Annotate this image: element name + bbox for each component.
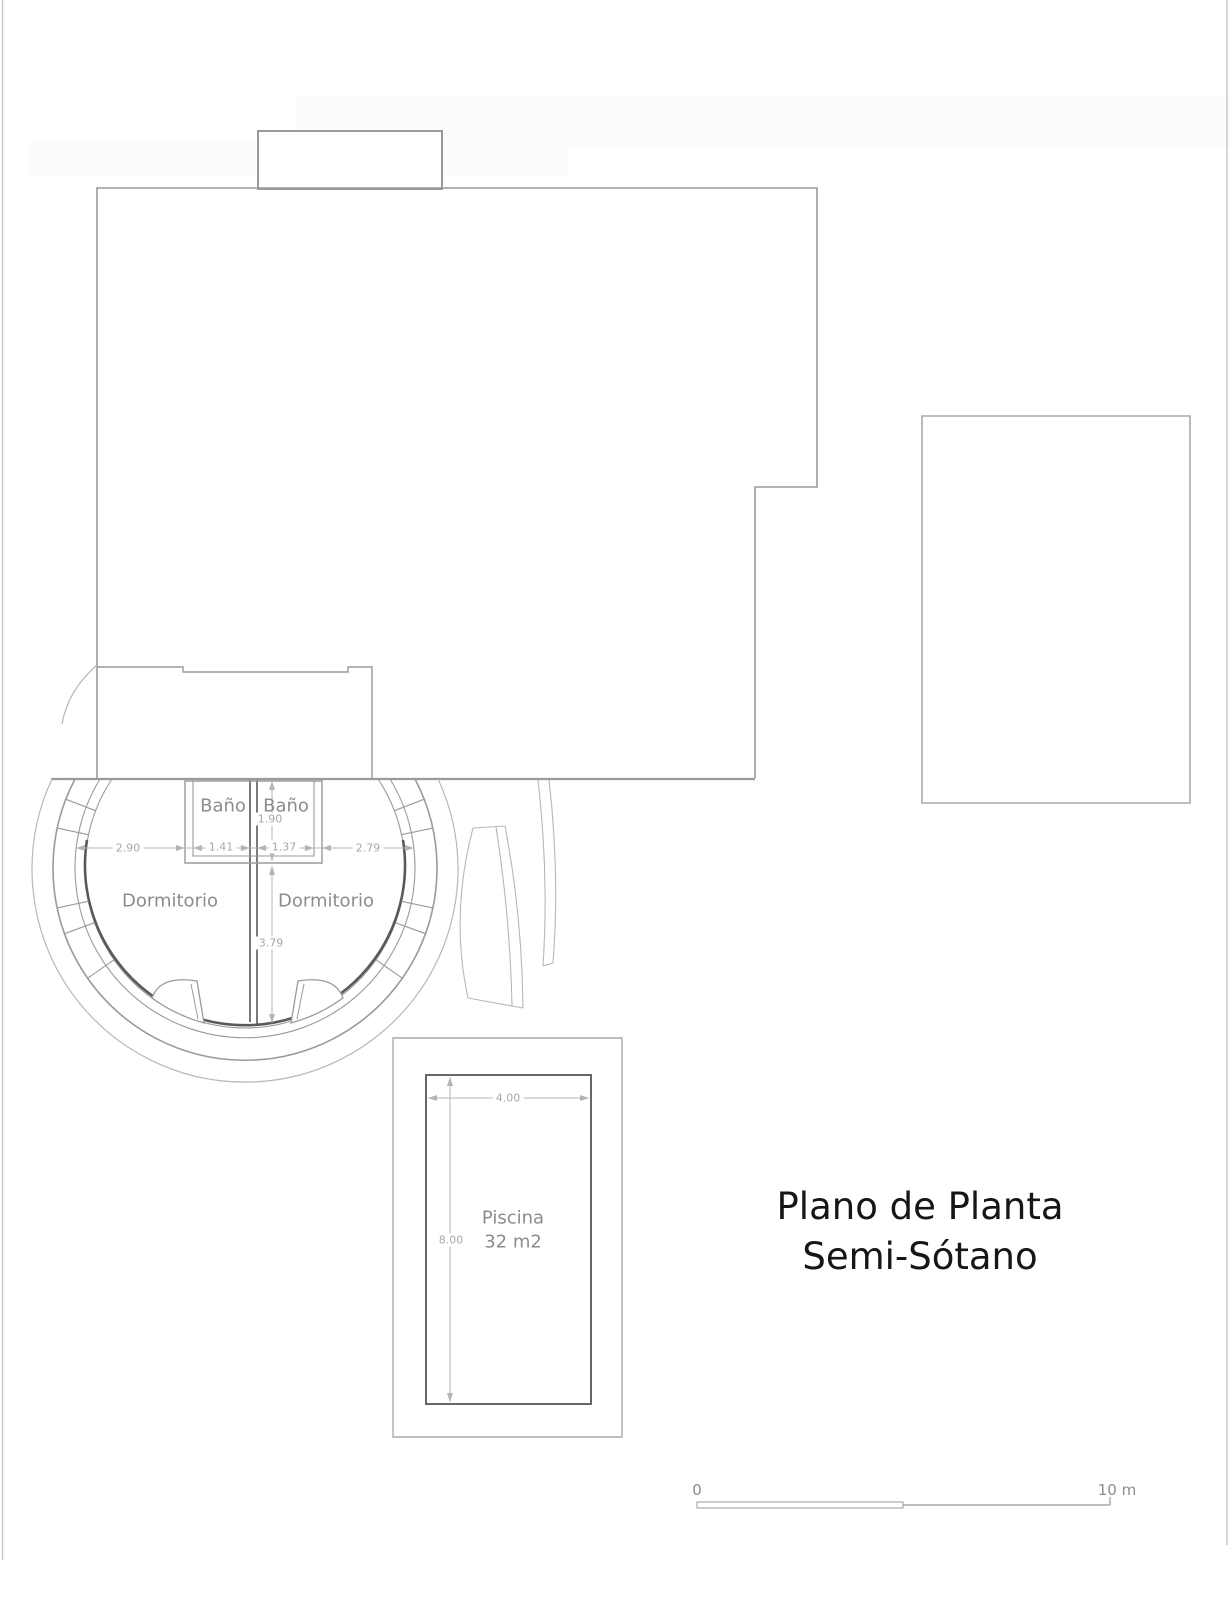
scale-start-label: 0 [692,1481,702,1499]
dim-bath-depth: 1.90 [255,813,286,826]
plan-title-line1: Plano de Planta [776,1182,1063,1232]
ramp-outer-band [538,780,556,966]
scale-bar-line [903,1497,1110,1505]
floor-plan-drawing [0,0,1231,1603]
window-divider-ticks [57,799,433,978]
dim-pool-length: 8.00 [436,1234,467,1247]
label-bedroom-right: Dormitorio [278,891,374,912]
label-pool-name: Piscina [482,1208,544,1229]
label-bedroom-left: Dormitorio [122,891,218,912]
building-outline [97,188,817,778]
label-pool-area: 32 m2 [484,1232,542,1253]
dim-bedroom-right-width: 2.79 [353,842,384,855]
dim-bedroom-left-width: 2.90 [113,842,144,855]
dim-bath-left-width: 1.41 [206,841,237,854]
label-bath-left: Baño [200,796,246,817]
detached-rectangle [922,416,1190,803]
dim-pool-width: 4.00 [493,1092,524,1105]
scale-end-label: 10 m [1098,1481,1136,1499]
plan-title-line2: Semi-Sótano [776,1232,1063,1282]
tower-outer-arc [32,779,458,1082]
tower-ring-inner-edge-dark [85,840,405,1025]
ramp-inner-band [460,826,523,1008]
chimney-rectangle [258,131,442,189]
floor-plan-canvas: Baño Baño Dormitorio Dormitorio Piscina … [0,0,1231,1603]
dim-bedroom-depth: 3.79 [256,937,287,950]
door-leaf-right [291,980,343,1023]
annex-wing-outline [97,667,372,778]
scale-bar-box [697,1502,903,1508]
plan-title: Plano de Planta Semi-Sótano [776,1182,1063,1282]
door-leaf-left [152,980,204,1023]
dim-bath-right-width: 1.37 [269,841,300,854]
tower-ring-outer-wall [53,779,437,1060]
tower-outer-arc-upper-stub [62,665,97,724]
